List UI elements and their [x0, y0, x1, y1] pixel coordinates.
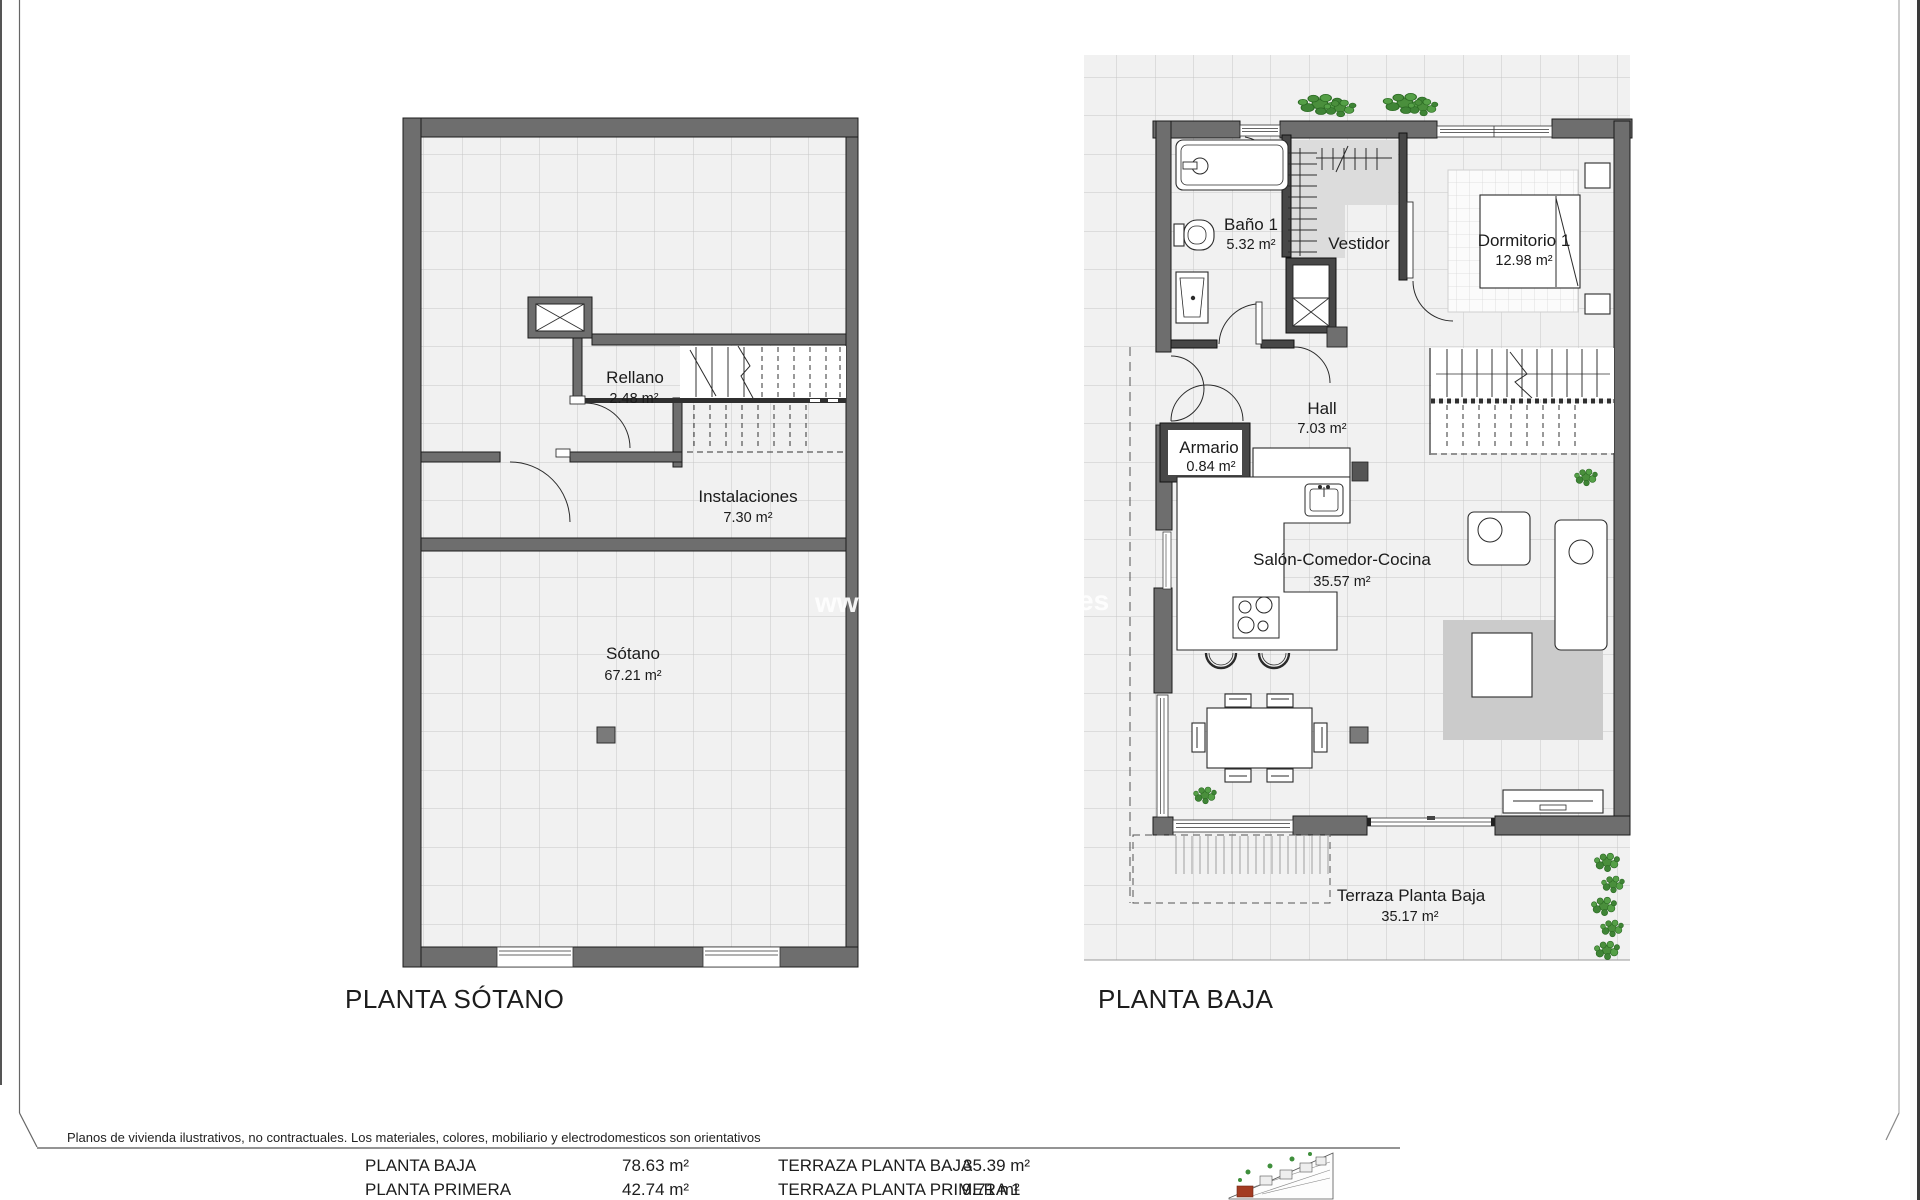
summary-label: PLANTA BAJA [365, 1156, 476, 1176]
watermark-right: es [1078, 585, 1109, 616]
tv-bench [1503, 790, 1603, 813]
site-plan-logo [1229, 1152, 1333, 1199]
ground-column [1350, 727, 1368, 743]
ground-stairs [1430, 348, 1614, 455]
room-area-salon: 35.57 m² [1313, 574, 1370, 590]
dining-table [1207, 708, 1312, 768]
kitchen-sink [1305, 484, 1343, 516]
summary-value: 9.71 m² [962, 1180, 1020, 1200]
room-label-armario: Armario [1179, 438, 1239, 457]
room-area-bano: 5.32 m² [1226, 237, 1275, 253]
room-area-instalaciones: 7.30 m² [723, 510, 772, 526]
room-label-vestidor: Vestidor [1328, 234, 1390, 253]
room-label-terraza: Terraza Planta Baja [1337, 886, 1486, 905]
room-label-dormitorio: Dormitorio 1 [1478, 231, 1571, 250]
cooktop [1233, 597, 1279, 638]
room-label-rellano: Rellano [606, 368, 664, 387]
room-area-armario: 0.84 m² [1186, 459, 1235, 475]
watermark: www es [814, 585, 1109, 618]
plan-drawing: Rellano 2.48 m² Instalaciones 7.30 m² Só… [0, 0, 1920, 1200]
highlighted-unit [1237, 1186, 1253, 1197]
ground-floor-plan: Baño 1 5.32 m² Vestidor Dormitorio 1 12.… [1084, 55, 1632, 960]
room-label-salon: Salón-Comedor-Cocina [1253, 550, 1431, 569]
watermark-left: www [814, 587, 881, 618]
summary-label: TERRAZA PLANTA BAJA [778, 1156, 972, 1176]
room-area-dormitorio: 12.98 m² [1495, 253, 1552, 269]
sheet-frame [0, 0, 1920, 1200]
elevator-shaft [528, 297, 592, 338]
coffee-table [1472, 633, 1532, 697]
kitchen-appliance [1352, 462, 1368, 481]
nightstand [1585, 163, 1610, 188]
bathtub [1176, 140, 1288, 190]
basement-column [597, 727, 615, 743]
basement-plan: Rellano 2.48 m² Instalaciones 7.30 m² Só… [403, 118, 858, 967]
room-label-hall: Hall [1307, 399, 1336, 418]
kitchen-peninsula [1253, 448, 1350, 477]
disclaimer-text: Planos de vivienda ilustrativos, no cont… [67, 1130, 761, 1145]
room-area-rellano: 2.48 m² [609, 391, 658, 407]
basement-plan-title: PLANTA SÓTANO [345, 984, 564, 1015]
room-area-sotano: 67.21 m² [604, 668, 661, 684]
frame-left-diagonal [20, 1113, 38, 1147]
ground-plan-title: PLANTA BAJA [1098, 984, 1274, 1015]
nightstand [1585, 294, 1610, 314]
room-label-bano: Baño 1 [1224, 215, 1278, 234]
sink-vanity [1176, 272, 1208, 323]
summary-value: 35.39 m² [963, 1156, 1030, 1176]
room-area-terraza: 35.17 m² [1381, 909, 1438, 925]
room-label-sotano: Sótano [606, 644, 660, 663]
frame-left-edge [0, 0, 2, 1085]
summary-value: 78.63 m² [622, 1156, 689, 1176]
summary-label: PLANTA PRIMERA [365, 1180, 511, 1200]
room-label-instalaciones: Instalaciones [698, 487, 797, 506]
toilet [1174, 220, 1214, 250]
frame-right-diagonal [1886, 1113, 1899, 1140]
summary-value: 42.74 m² [622, 1180, 689, 1200]
room-area-hall: 7.03 m² [1297, 421, 1346, 437]
floorplan-sheet: Rellano 2.48 m² Instalaciones 7.30 m² Só… [0, 0, 1920, 1200]
